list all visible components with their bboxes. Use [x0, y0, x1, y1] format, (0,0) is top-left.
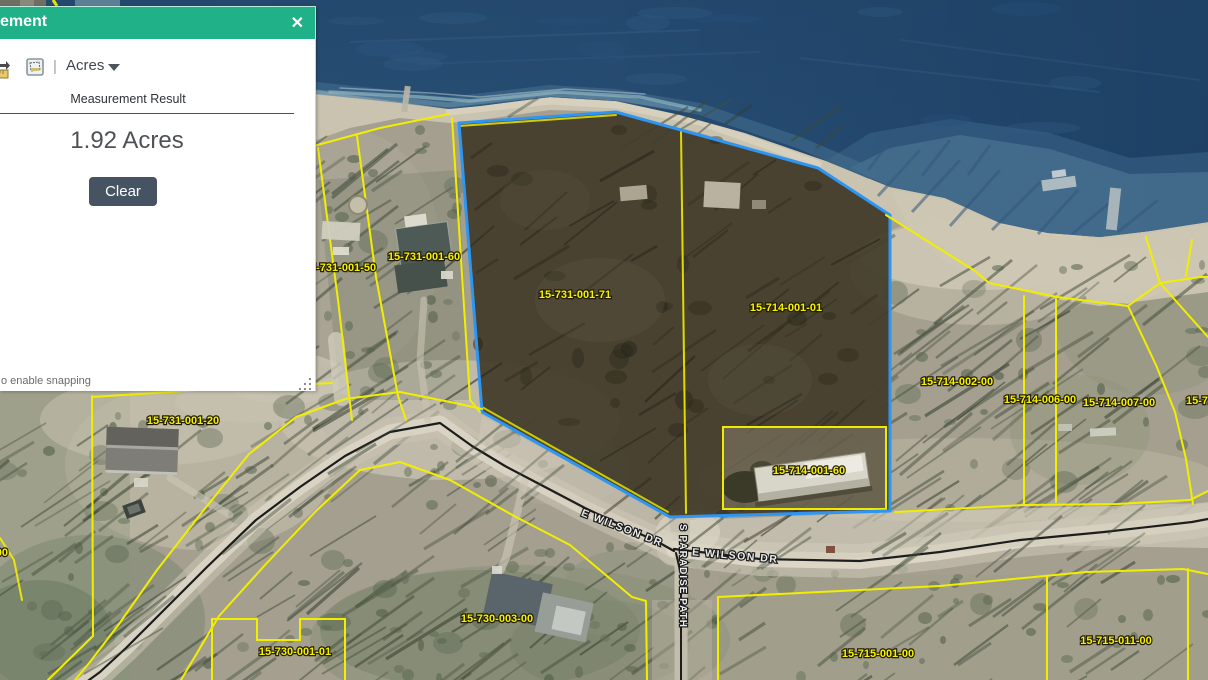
svg-text:15-730-002-00: 15-730-002-00	[0, 547, 8, 559]
svg-text:15-730-003-00: 15-730-003-00	[461, 613, 533, 625]
svg-text:15-731-001-71: 15-731-001-71	[539, 289, 611, 301]
svg-text:15-730-001-01: 15-730-001-01	[259, 646, 331, 658]
svg-text:15-714-008-00: 15-714-008-00	[1186, 395, 1208, 407]
svg-text:15-715-001-00: 15-715-001-00	[842, 648, 914, 660]
svg-text:15-714-002-00: 15-714-002-00	[921, 376, 993, 388]
svg-text:15-731-001-20: 15-731-001-20	[147, 415, 219, 427]
svg-text:15-714-006-00: 15-714-006-00	[1004, 394, 1076, 406]
svg-text:S PARADISE PATH: S PARADISE PATH	[677, 524, 688, 628]
svg-text:15-731-001-60: 15-731-001-60	[388, 251, 460, 263]
svg-text:15-714-001-60: 15-714-001-60	[773, 465, 845, 477]
svg-text:15-715-011-00: 15-715-011-00	[1080, 635, 1152, 647]
svg-text:15-714-007-00: 15-714-007-00	[1083, 397, 1155, 409]
svg-text:15-714-001-01: 15-714-001-01	[750, 302, 822, 314]
